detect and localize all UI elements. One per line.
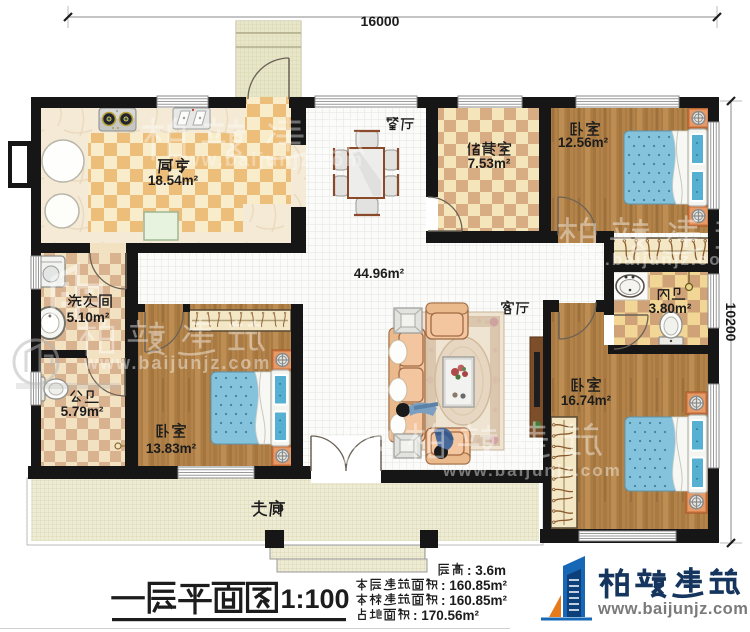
svg-text:www.baijunjz.com: www.baijunjz.com	[442, 461, 622, 480]
svg-text:44.96m²: 44.96m²	[354, 266, 405, 281]
svg-text:18.54m²: 18.54m²	[148, 173, 199, 188]
svg-text:1:100: 1:100	[280, 584, 349, 614]
svg-text:www.baijunjz.com: www.baijunjz.com	[559, 250, 739, 269]
svg-text:www.baijunjz.com: www.baijunjz.com	[597, 600, 748, 618]
svg-text:16.74m²: 16.74m²	[561, 393, 612, 408]
svg-text:3.80m²: 3.80m²	[649, 301, 692, 316]
svg-text:12.56m²: 12.56m²	[558, 135, 609, 150]
svg-text:: 3.6m: : 3.6m	[467, 563, 506, 578]
svg-text:5.79m²: 5.79m²	[61, 404, 104, 419]
svg-text:5.10m²: 5.10m²	[67, 310, 110, 325]
svg-text:www.baijunjz.com: www.baijunjz.com	[167, 150, 364, 171]
svg-text:: 170.56m²: : 170.56m²	[413, 608, 480, 623]
svg-text:13.83m²: 13.83m²	[146, 441, 197, 456]
svg-text:: 160.85m²: : 160.85m²	[441, 593, 508, 608]
svg-text:16000: 16000	[361, 13, 400, 29]
svg-text:10200: 10200	[723, 303, 739, 342]
svg-text:: 160.85m²: : 160.85m²	[441, 578, 508, 593]
svg-text:www.baijunjz.com: www.baijunjz.com	[83, 353, 271, 373]
svg-text:7.53m²: 7.53m²	[468, 156, 511, 171]
